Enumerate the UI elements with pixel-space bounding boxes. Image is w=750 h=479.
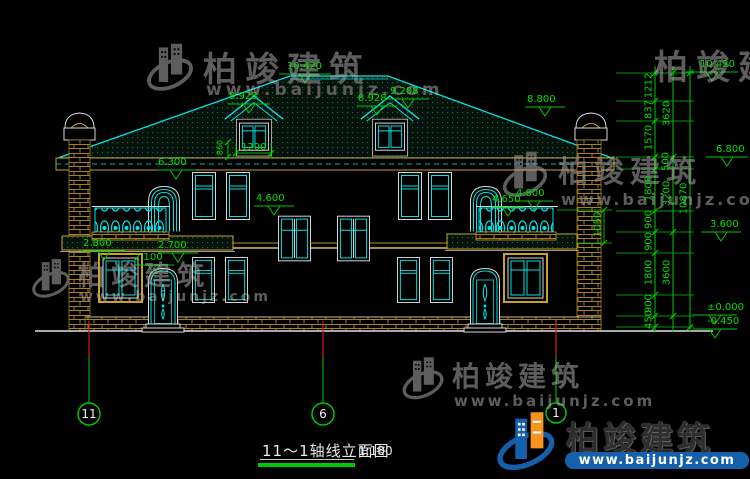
elev-right-6800: 6.800 <box>716 144 745 155</box>
level-marker-triangle <box>170 170 182 179</box>
watermark-brand: 柏竣建筑 <box>452 355 584 395</box>
elev-right-neg: -0.450 <box>707 316 739 327</box>
stair-window <box>278 216 310 261</box>
chain-subtotal: 3200 <box>662 174 673 214</box>
elev-right-3600: 3.600 <box>710 219 739 230</box>
elev-chimney-right: 8.800 <box>527 94 556 105</box>
title-underline-green <box>258 463 355 467</box>
entrance-door-right <box>471 269 500 324</box>
window-2f <box>193 173 216 220</box>
window-1f <box>397 257 419 302</box>
brand-logo-icon <box>494 410 562 474</box>
watermark-site: www.baijunjz.com <box>80 289 271 305</box>
elev-dormer-right-eave: 8.928 <box>358 93 387 104</box>
chain-seg: 1570 <box>644 118 655 158</box>
level-marker-triangle <box>715 232 727 241</box>
elev-right-top: 10.420 <box>700 59 735 70</box>
window-2f <box>429 173 452 220</box>
brand-site: www.baijunjz.com <box>579 453 736 468</box>
chain-seg: 450 <box>644 300 655 340</box>
dim-balcony-rail: 1050 <box>593 205 604 245</box>
dim-dormer-sill: 860 <box>216 134 225 162</box>
watermark-site: www.baijunjz.com <box>561 190 750 209</box>
level-marker-triangle <box>721 157 733 166</box>
elev-door-head: 2.100 <box>134 252 163 263</box>
dim-dormer-width: 1200 <box>241 142 266 153</box>
chain-subtotal: 3600 <box>662 253 673 293</box>
brand-url-bar: www.baijunjz.com <box>565 452 749 469</box>
balcony-left <box>92 207 169 241</box>
window-2f <box>399 173 422 220</box>
elev-dormer-right-ridge: 9.208 <box>390 86 419 97</box>
elev-2f-sill: 4.600 <box>256 193 285 204</box>
window-1f-framed <box>504 254 547 302</box>
axis-bubble-6: 6 <box>311 407 335 421</box>
elev-awning-right: 2.700 <box>158 240 187 251</box>
stair-window <box>337 216 369 261</box>
elev-balcony-b: 4.800 <box>516 188 545 199</box>
axis-bubble-11: 11 <box>77 407 101 421</box>
elev-dormer-left: 8.928 <box>229 91 258 102</box>
watermark-logo-icon <box>142 40 198 96</box>
title-underline <box>260 459 354 460</box>
chain-subtotal: 3620 <box>662 94 673 134</box>
elev-right-zero: ±0.000 <box>707 302 744 313</box>
window-2f <box>227 173 250 220</box>
level-marker-triangle <box>539 107 551 116</box>
drawing-scale: 1:100 <box>358 444 393 458</box>
watermark-logo-icon <box>398 354 448 404</box>
elev-eave: 6.300 <box>158 157 187 168</box>
balcony-right <box>476 207 558 241</box>
watermark-logo-icon <box>28 256 74 302</box>
level-marker-triangle <box>268 206 280 215</box>
window-1f <box>430 257 452 302</box>
elev-ridge: 10.420 <box>287 61 322 72</box>
chain-total: 10870 <box>679 179 690 219</box>
elev-awning-left: 2.800 <box>83 238 112 249</box>
cad-elevation-screenshot: 10.420 8.928 8.928 9.208 8.800 6.300 4.6… <box>0 0 750 479</box>
